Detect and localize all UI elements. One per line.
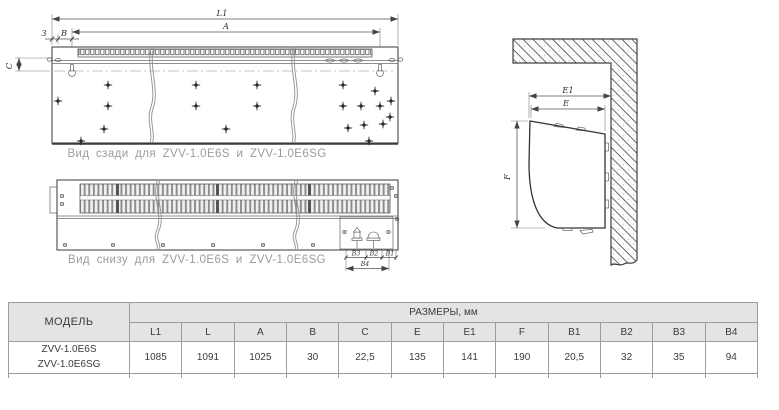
dim-label-e: E — [562, 99, 570, 109]
cell-e1: 141 — [443, 342, 495, 374]
col-header-b: B — [286, 323, 338, 342]
col-header-e1: E1 — [443, 323, 495, 342]
cell-l: 1091 — [182, 342, 234, 374]
table-header-sizes: РАЗМЕРЫ, мм — [130, 303, 758, 323]
dim-label-a: A — [222, 22, 229, 32]
table-header-model: МОДЕЛЬ — [9, 303, 130, 342]
cell-e: 135 — [391, 342, 443, 374]
col-header-b4: B4 — [705, 323, 757, 342]
cell-b4: 94 — [705, 342, 757, 374]
dim-label-e1: E1 — [561, 86, 574, 96]
cell-b1: 20,5 — [548, 342, 600, 374]
dim-label-b: B — [60, 29, 67, 39]
dimensions-table-wrap: МОДЕЛЬ РАЗМЕРЫ, мм L1 L A B C E E1 F B1 … — [8, 302, 758, 378]
col-header-b3: B3 — [653, 323, 705, 342]
table-row: ZVV-1.0E6S ZVV-1.0E6SG 1085 1091 1025 30… — [9, 342, 758, 374]
col-header-f: F — [496, 323, 548, 342]
model-name-2: ZVV-1.0E6SG — [9, 358, 129, 373]
dim-label-c: C — [5, 62, 15, 69]
model-cell: ZVV-1.0E6S ZVV-1.0E6SG — [9, 342, 130, 374]
unit-profile — [529, 121, 605, 228]
dim-label-3: 3 — [41, 29, 46, 39]
dim-label-b1: B1 — [385, 251, 395, 258]
dim-label-b3: B3 — [351, 251, 361, 258]
col-header-a: A — [234, 323, 286, 342]
technical-drawings: L1 A 3 B C — [0, 0, 779, 300]
dim-label-f: F — [503, 173, 513, 181]
catalog-page: L1 A 3 B C — [0, 0, 779, 410]
col-header-l1: L1 — [130, 323, 182, 342]
cell-c: 22,5 — [339, 342, 391, 374]
side-view-drawing: E1 E F — [503, 39, 637, 265]
dimensions-table: МОДЕЛЬ РАЗМЕРЫ, мм L1 L A B C E E1 F B1 … — [8, 302, 758, 378]
caption-rear-view: Вид сзади для ZVV-1.0E6S и ZVV-1.0E6SG — [67, 148, 326, 160]
dim-label-l1: L1 — [215, 9, 227, 19]
col-header-b2: B2 — [600, 323, 652, 342]
rear-grille-band — [78, 49, 372, 57]
cell-b2: 32 — [600, 342, 652, 374]
model-name-1: ZVV-1.0E6S — [9, 343, 129, 358]
dim-label-b4: B4 — [360, 261, 370, 268]
cell-f: 190 — [496, 342, 548, 374]
grille-rail — [80, 196, 390, 201]
col-header-l: L — [182, 323, 234, 342]
cell-a: 1025 — [234, 342, 286, 374]
cell-b3: 35 — [653, 342, 705, 374]
cell-b: 30 — [286, 342, 338, 374]
caption-bottom-view: Вид снизу для ZVV-1.0E6S и ZVV-1.0E6SG — [68, 254, 326, 266]
dim-label-b2: B2 — [369, 251, 379, 258]
cell-l1: 1085 — [130, 342, 182, 374]
col-header-c: C — [339, 323, 391, 342]
table-row-partial — [9, 374, 758, 379]
col-header-b1: B1 — [548, 323, 600, 342]
rear-view-drawing: L1 A 3 B C — [5, 9, 403, 145]
col-header-e: E — [391, 323, 443, 342]
